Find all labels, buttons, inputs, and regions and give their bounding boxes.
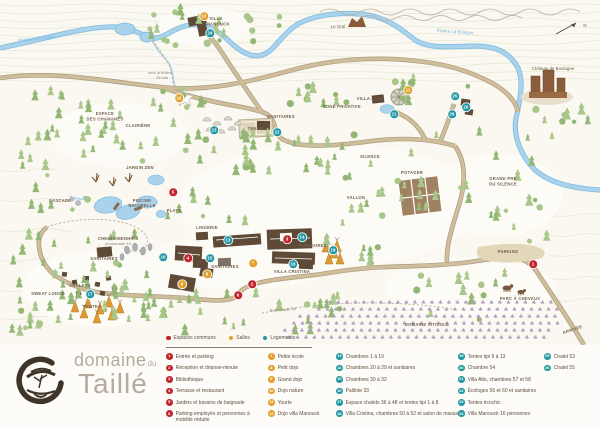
logo-word-du: du bbox=[148, 359, 157, 368]
map-label: PLATS bbox=[167, 208, 182, 213]
legend-item-6: 6Parking employés et personnes à mobilit… bbox=[166, 410, 262, 424]
tree-icon bbox=[173, 42, 179, 48]
logo-word-taille: Taillé bbox=[78, 368, 156, 400]
map-label: DES CHAMANES bbox=[87, 117, 124, 122]
legend-item-number: 21 bbox=[458, 376, 465, 383]
legend-item-label: Jardins et bassins de baignade bbox=[176, 399, 245, 406]
legend-item-17: 17Espace chalets 36 à 48 et tentes tipi … bbox=[336, 399, 464, 406]
legend-key-dot bbox=[263, 336, 268, 341]
tree-icon bbox=[351, 131, 358, 138]
tree-icon bbox=[287, 100, 294, 107]
map-label: ESPACE bbox=[96, 111, 114, 116]
tree-icon bbox=[400, 96, 406, 102]
legend-item-label: Petite école bbox=[278, 353, 304, 360]
tree-icon bbox=[183, 147, 189, 153]
map-label: SANITAIRES bbox=[211, 264, 239, 269]
tree-icon bbox=[337, 306, 343, 312]
legend-item-label: Chambres 1 à 19 bbox=[346, 353, 384, 360]
legend-item-label: Villa Alto, chambres 57 et 58 bbox=[468, 376, 531, 383]
legend-item-4: 4Terrasse et restaurant bbox=[166, 387, 262, 394]
map-label: 25 min bbox=[156, 75, 168, 80]
legend-column-5: 25Chalet 5326Chalet 55 bbox=[544, 353, 575, 376]
tree-icon bbox=[52, 270, 57, 275]
legend-item-label: Petit dojo bbox=[278, 364, 299, 371]
legend-item-21: 21Villa Alto, chambres 57 et 58 bbox=[458, 376, 536, 383]
legend-key-label: Salles bbox=[236, 335, 250, 341]
legend-item-label: Yourte bbox=[278, 399, 292, 406]
legend-item-2: 2Réception et dépose-minute bbox=[166, 364, 262, 371]
tree-icon bbox=[172, 9, 178, 15]
legend-column-3: 13Chambres 1 à 1914Chambres 20 à 29 et s… bbox=[336, 353, 464, 422]
legend-item-22: 22Écologes 56 et 60 et sanitaires bbox=[458, 387, 536, 394]
legend-column-4: 19Tentes tipi 9 à 1320Chambre 5421Villa … bbox=[458, 353, 536, 422]
map-label: VALLON bbox=[347, 195, 365, 200]
tree-icon bbox=[164, 38, 170, 44]
legend-key-label: Logements bbox=[270, 335, 295, 341]
legend-item-10: 10Dojo nature bbox=[268, 387, 320, 394]
map-label: PARKING bbox=[498, 249, 519, 254]
legend-column-2: 7Petite école8Petit dojo9Grand dojo10Doj… bbox=[268, 353, 320, 422]
legend-item-number: 17 bbox=[336, 399, 343, 406]
legend-item-number: 13 bbox=[336, 353, 343, 360]
legend-item-12: 12Dojo villa Manouck bbox=[268, 410, 320, 417]
legend-key-salles: Salles bbox=[229, 335, 250, 341]
legend-item-label: Paillote 33 bbox=[346, 387, 369, 394]
tree-icon bbox=[217, 38, 221, 42]
site-map-illustration: Rivière La BologneRivière La BologneLe G… bbox=[0, 0, 600, 345]
legend-item-label: Villa Manouck 16 personnes bbox=[468, 410, 531, 417]
tree-icon bbox=[375, 244, 381, 250]
legend-item-number: 7 bbox=[268, 353, 275, 360]
legend-item-number: 8 bbox=[268, 365, 275, 372]
legend-item-label: Chalet 53 bbox=[554, 353, 575, 360]
legend-item-label: Écologes 56 et 60 et sanitaires bbox=[468, 387, 536, 394]
legend-item-14: 14Chambres 20 à 29 et sanitaires bbox=[336, 364, 464, 371]
tree-icon bbox=[204, 39, 211, 46]
map-label: DU SILENCE bbox=[489, 182, 517, 187]
villa-alto-pool bbox=[380, 105, 394, 114]
legend-item-label: Villa Cristina, chambres 50 à 52 et salo… bbox=[346, 410, 464, 417]
legend-item-label: Terrasse et restaurant bbox=[176, 387, 225, 394]
map-label: SANITAIRES bbox=[267, 114, 295, 119]
map-area: Rivière La BologneRivière La BologneLe G… bbox=[0, 0, 600, 345]
tree-icon bbox=[572, 120, 576, 124]
tree-icon bbox=[418, 272, 424, 278]
legend-separator bbox=[166, 347, 312, 348]
map-label: PARC À CHEVAUX bbox=[500, 296, 541, 301]
map-label: MANOUCK bbox=[206, 22, 230, 27]
legend-item-9: 9Grand dojo bbox=[268, 376, 320, 383]
legend-item-20: 20Chambre 54 bbox=[458, 364, 536, 371]
map-label: N bbox=[583, 23, 586, 28]
tree-icon bbox=[250, 38, 256, 44]
legend-item-number: 25 bbox=[544, 353, 551, 360]
legend-item-number: 16 bbox=[336, 388, 343, 395]
tree-icon bbox=[478, 282, 485, 289]
tree-icon bbox=[70, 207, 75, 212]
tree-icon bbox=[249, 27, 255, 33]
tree-icon bbox=[103, 308, 108, 313]
legend-item-label: Espace chalets 36 à 48 et tentes tipi 1 … bbox=[346, 399, 439, 406]
map-label: VILLA ALTO bbox=[357, 96, 384, 101]
map-label: JARDIN ZEN bbox=[126, 165, 154, 170]
tree-icon bbox=[536, 204, 543, 211]
tree-icon bbox=[395, 178, 402, 185]
map-label: DOMAINE VITICOLE bbox=[405, 322, 449, 327]
legend-item-23: 23Tentes écochic bbox=[458, 399, 536, 406]
legend-item-number: 15 bbox=[336, 376, 343, 383]
tree-icon bbox=[533, 198, 538, 203]
tree-icon bbox=[481, 292, 487, 298]
legend-item-25: 25Chalet 53 bbox=[544, 353, 575, 360]
map-label: SWEAT LODGE bbox=[31, 291, 65, 296]
map-label: GRAND PRÉ bbox=[489, 176, 516, 181]
legend-item-number: 22 bbox=[458, 388, 465, 395]
map-label: TENNIS bbox=[248, 126, 265, 131]
map-label: SANITAIRES bbox=[90, 256, 118, 261]
legend-item-label: Chambres 20 à 29 et sanitaires bbox=[346, 364, 415, 371]
map-label: VILLA bbox=[209, 16, 222, 21]
logo-word-domaine: domaine bbox=[74, 350, 147, 370]
legend-item-18: 18Villa Cristina, chambres 50 à 52 et sa… bbox=[336, 410, 464, 417]
legend-item-label: Parking employés et personnes à mobilité… bbox=[176, 410, 262, 424]
map-label: CASCADE bbox=[49, 198, 71, 203]
site-map-poster: Rivière La BologneRivière La BologneLe G… bbox=[0, 0, 600, 423]
legend-item-15: 15Chambres 30 à 32 bbox=[336, 376, 464, 383]
tree-icon bbox=[504, 209, 509, 214]
map-label: Château de Boulogne bbox=[532, 66, 575, 71]
tree-icon bbox=[333, 92, 338, 97]
map-label: POTAGER bbox=[401, 170, 423, 175]
map-label: LINGERIE bbox=[196, 225, 218, 230]
map-label: ZONE PRIVATIVE bbox=[323, 104, 361, 109]
legend-key-logements: Logements bbox=[263, 335, 295, 341]
legend-item-19: 19Tentes tipi 9 à 13 bbox=[458, 353, 536, 360]
tree-icon bbox=[304, 301, 310, 307]
legend-item-number: 26 bbox=[544, 365, 551, 372]
legend-item-label: Réception et dépose-minute bbox=[176, 364, 239, 371]
map-label: NATURELLE bbox=[128, 203, 155, 208]
legend-item-8: 8Petit dojo bbox=[268, 364, 320, 371]
tree-icon bbox=[201, 214, 206, 219]
legend-item-number: 20 bbox=[458, 365, 465, 372]
legend-item-number: 23 bbox=[458, 399, 465, 406]
legend-item-label: Dojo villa Manouck bbox=[278, 410, 320, 417]
legend-item-number: 12 bbox=[268, 410, 275, 417]
legend-item-7: 7Petite école bbox=[268, 353, 320, 360]
legend-item-16: 16Paillote 33 bbox=[336, 387, 464, 394]
legend-item-label: Dojo nature bbox=[278, 387, 304, 394]
tree-icon bbox=[277, 23, 282, 28]
map-label: promenade 1h bbox=[105, 241, 131, 246]
tree-icon bbox=[246, 16, 253, 23]
tree-icon bbox=[458, 185, 463, 190]
legend-column-1: 1Entrée et parking2Réception et dépose-m… bbox=[166, 353, 262, 428]
tree-icon bbox=[343, 175, 349, 181]
tree-icon bbox=[140, 158, 146, 164]
legend-key-label: Espaces communs bbox=[174, 335, 216, 341]
brand-logo-text: domainedu Taillé bbox=[74, 350, 156, 400]
legend-item-number: 9 bbox=[268, 376, 275, 383]
tree-icon bbox=[532, 106, 539, 113]
tree-icon bbox=[408, 79, 415, 86]
tree-icon bbox=[160, 89, 166, 95]
legend-item-11: 11Yourte bbox=[268, 399, 320, 406]
legend-key-communs: Espaces communs bbox=[166, 335, 216, 341]
tree-icon bbox=[392, 78, 399, 85]
legend-item-label: Grand dojo bbox=[278, 376, 303, 383]
legend-key: Espaces communsSallesLogements bbox=[166, 335, 295, 341]
legend-item-number: 10 bbox=[268, 388, 275, 395]
legend-item-label: Chalet 55 bbox=[554, 364, 575, 371]
legend-item-number: 14 bbox=[336, 365, 343, 372]
tree-icon bbox=[179, 86, 184, 91]
map-label: CHALETS bbox=[69, 283, 91, 288]
map-label: SILENCE bbox=[360, 154, 380, 159]
legend-item-5: 5Jardins et bassins de baignade bbox=[166, 399, 262, 406]
tree-icon bbox=[413, 287, 420, 294]
legend-item-26: 26Chalet 55 bbox=[544, 364, 575, 371]
legend-item-label: Chambres 30 à 32 bbox=[346, 376, 387, 383]
enso-tree-logo-icon bbox=[14, 354, 68, 412]
tree-icon bbox=[84, 196, 91, 203]
tree-icon bbox=[184, 104, 190, 110]
legend-item-label: Entrée et parking bbox=[176, 353, 214, 360]
legend-key-dot bbox=[166, 336, 171, 341]
tree-icon bbox=[45, 173, 49, 177]
legend-item-number: 24 bbox=[458, 410, 465, 417]
legend-item-number: 19 bbox=[458, 353, 465, 360]
legend-item-number: 18 bbox=[336, 410, 343, 417]
tree-icon bbox=[277, 14, 283, 20]
map-label: CLAIRIÈRE bbox=[126, 123, 151, 128]
tree-icon bbox=[151, 12, 156, 17]
legend-item-24: 24Villa Manouck 16 personnes bbox=[458, 410, 536, 417]
tree-icon bbox=[202, 136, 209, 143]
legend-item-1: 1Entrée et parking bbox=[166, 353, 262, 360]
map-label: TENTES bbox=[83, 304, 101, 309]
legend-item-13: 13Chambres 1 à 19 bbox=[336, 353, 464, 360]
tree-icon bbox=[465, 84, 470, 89]
tree-icon bbox=[181, 92, 186, 97]
brand-logo: domainedu Taillé bbox=[10, 348, 180, 420]
legend-item-label: Tentes écochic bbox=[468, 399, 501, 406]
tree-icon bbox=[379, 212, 386, 219]
tree-icon bbox=[527, 239, 532, 244]
tree-icon bbox=[18, 308, 24, 314]
legend-item-label: Chambre 54 bbox=[468, 364, 496, 371]
legend-item-label: Tentes tipi 9 à 13 bbox=[468, 353, 506, 360]
map-label: VILLA CRISTINA bbox=[274, 269, 310, 274]
map-label: SANITAIRES bbox=[299, 243, 327, 248]
legend-item-3: 3Bibliothèque bbox=[166, 376, 262, 383]
legend-key-dot bbox=[229, 336, 234, 341]
map-label: Le Gral bbox=[331, 24, 345, 29]
legend-item-number: 11 bbox=[268, 399, 275, 406]
